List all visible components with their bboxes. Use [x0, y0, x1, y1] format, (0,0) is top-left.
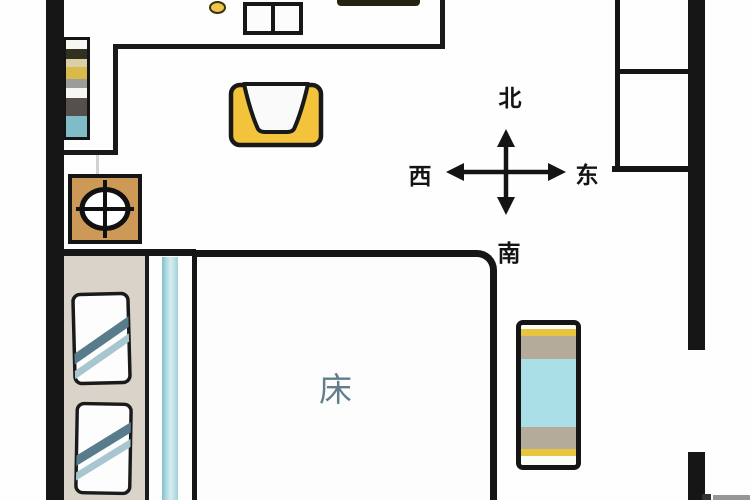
- compass-south-label: 南: [498, 234, 521, 268]
- bed-headboard-frame: [145, 256, 149, 500]
- wardrobe-icon: [615, 0, 620, 171]
- pillow-icon: [72, 400, 135, 496]
- door-line: [96, 155, 99, 175]
- partition-wall-vertical-left: [113, 44, 118, 155]
- compass-north-label: 北: [499, 79, 522, 113]
- round-stool-icon: [209, 1, 226, 14]
- stove-burner-icon: [68, 174, 142, 244]
- pillow-icon: [70, 290, 133, 387]
- right-wall-upper: [688, 0, 705, 350]
- partition-wall-stub: [64, 150, 118, 155]
- partition-wall-horizontal: [113, 44, 445, 49]
- partition-wall-vertical-right: [440, 0, 445, 49]
- bed-runner-stripe: [162, 257, 178, 500]
- compass-cross-icon: [440, 126, 572, 218]
- striped-bookshelf-icon: [64, 37, 90, 140]
- burner-symbol-icon: [72, 178, 138, 240]
- table-divider: [271, 6, 275, 31]
- striped-bench-icon: [516, 320, 581, 470]
- wardrobe-bottom-line: [612, 166, 688, 172]
- bed-label: 床: [319, 363, 353, 411]
- watermark-fragment: [702, 493, 750, 500]
- two-drawer-table-icon: [243, 2, 303, 35]
- wardrobe-shelf-line: [618, 69, 688, 74]
- compass-east-label: 东: [576, 156, 599, 190]
- compass-west-label: 西: [409, 157, 432, 191]
- armchair-icon: [228, 82, 324, 148]
- bed-head-wall: [46, 249, 196, 256]
- floor-plan-canvas: 床 北 西 东 南: [0, 0, 750, 500]
- console-shelf-icon: [337, 0, 420, 6]
